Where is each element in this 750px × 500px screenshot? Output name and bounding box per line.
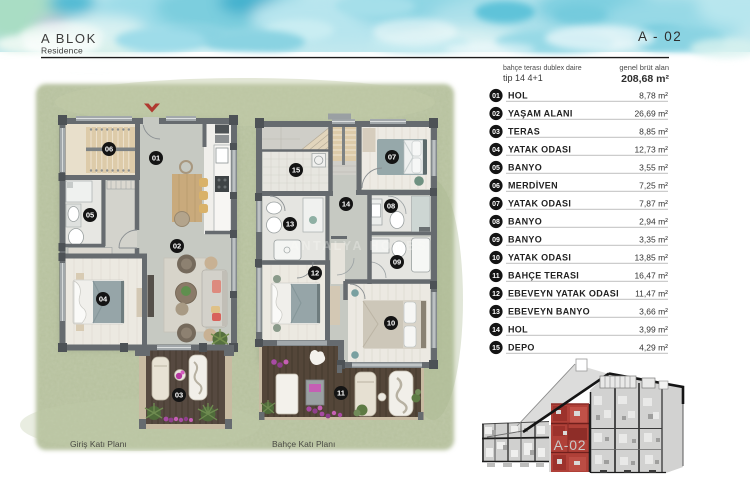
svg-text:14: 14: [342, 200, 351, 209]
svg-text:03: 03: [175, 391, 183, 400]
svg-text:4,29 m²: 4,29 m²: [639, 342, 668, 352]
svg-text:14: 14: [492, 327, 500, 334]
svg-text:208,68 m²: 208,68 m²: [621, 73, 669, 85]
svg-text:bahçe terası dublex daire: bahçe terası dublex daire: [503, 65, 582, 72]
svg-text:8,85 m²: 8,85 m²: [639, 126, 668, 136]
svg-text:3,99 m²: 3,99 m²: [639, 324, 668, 334]
svg-text:YATAK ODASI: YATAK ODASI: [508, 253, 571, 263]
svg-text:3,66 m²: 3,66 m²: [639, 306, 668, 316]
svg-text:MERDİVEN: MERDİVEN: [508, 181, 558, 191]
svg-text:13,85 m²: 13,85 m²: [634, 252, 668, 262]
svg-text:BAHÇE TERASI: BAHÇE TERASI: [508, 271, 579, 281]
svg-text:Giriş Katı Planı: Giriş Katı Planı: [70, 439, 127, 449]
svg-text:08: 08: [492, 219, 500, 226]
svg-text:11: 11: [337, 389, 345, 398]
svg-text:3,35 m²: 3,35 m²: [639, 234, 668, 244]
svg-text:05: 05: [492, 165, 500, 172]
svg-text:04: 04: [492, 147, 500, 154]
svg-text:7,25 m²: 7,25 m²: [639, 180, 668, 190]
svg-text:08: 08: [387, 202, 395, 211]
svg-text:YAŞAM ALANI: YAŞAM ALANI: [508, 109, 573, 119]
svg-text:A - 02: A - 02: [638, 29, 682, 44]
svg-text:8,78 m²: 8,78 m²: [639, 90, 668, 100]
svg-text:A BLOK: A BLOK: [41, 31, 97, 46]
svg-text:16,47 m²: 16,47 m²: [634, 270, 668, 280]
svg-text:A-02: A-02: [554, 437, 587, 453]
svg-text:TERAS: TERAS: [508, 127, 540, 137]
svg-text:tip 14 4+1: tip 14 4+1: [503, 73, 543, 83]
svg-text:13: 13: [492, 309, 500, 316]
svg-text:HOL: HOL: [508, 91, 528, 101]
svg-text:10: 10: [387, 319, 395, 328]
svg-text:EBEVEYN BANYO: EBEVEYN BANYO: [508, 307, 590, 317]
svg-text:YATAK ODASI: YATAK ODASI: [508, 199, 571, 209]
svg-text:7,87 m²: 7,87 m²: [639, 198, 668, 208]
svg-text:02: 02: [492, 111, 500, 118]
svg-text:11: 11: [492, 273, 500, 280]
svg-text:2,94 m²: 2,94 m²: [639, 216, 668, 226]
svg-text:06: 06: [105, 145, 113, 154]
svg-text:09: 09: [492, 237, 500, 244]
svg-text:12: 12: [492, 291, 500, 298]
svg-text:EBEVEYN YATAK ODASI: EBEVEYN YATAK ODASI: [508, 289, 619, 299]
svg-text:11,47 m²: 11,47 m²: [635, 288, 668, 298]
svg-text:07: 07: [492, 201, 500, 208]
svg-text:15: 15: [292, 166, 300, 175]
svg-text:01: 01: [492, 93, 500, 100]
svg-text:02: 02: [173, 242, 181, 251]
svg-text:Bahçe Katı Planı: Bahçe Katı Planı: [272, 439, 335, 449]
svg-text:03: 03: [492, 129, 500, 136]
svg-text:YATAK ODASI: YATAK ODASI: [508, 145, 571, 155]
svg-text:HOL: HOL: [508, 325, 528, 335]
svg-text:BANYO: BANYO: [508, 217, 542, 227]
svg-text:DEPO: DEPO: [508, 343, 535, 353]
svg-text:01: 01: [152, 154, 160, 163]
svg-text:06: 06: [492, 183, 500, 190]
svg-text:09: 09: [393, 258, 401, 267]
svg-text:05: 05: [86, 211, 94, 220]
svg-text:07: 07: [388, 153, 396, 162]
svg-text:26,69 m²: 26,69 m²: [634, 108, 668, 118]
svg-text:12: 12: [311, 269, 319, 278]
svg-text:Residence: Residence: [41, 46, 83, 56]
svg-text:10: 10: [492, 255, 500, 262]
svg-text:04: 04: [99, 295, 108, 304]
svg-text:3,55 m²: 3,55 m²: [639, 162, 668, 172]
svg-text:BANYO: BANYO: [508, 235, 542, 245]
svg-text:ANTALYA HOMES: ANTALYA HOMES: [290, 239, 428, 253]
svg-text:12,73 m²: 12,73 m²: [634, 144, 668, 154]
svg-text:15: 15: [492, 345, 500, 352]
svg-text:BANYO: BANYO: [508, 163, 542, 173]
svg-text:13: 13: [286, 220, 294, 229]
svg-text:genel brüt alan: genel brüt alan: [619, 63, 669, 72]
